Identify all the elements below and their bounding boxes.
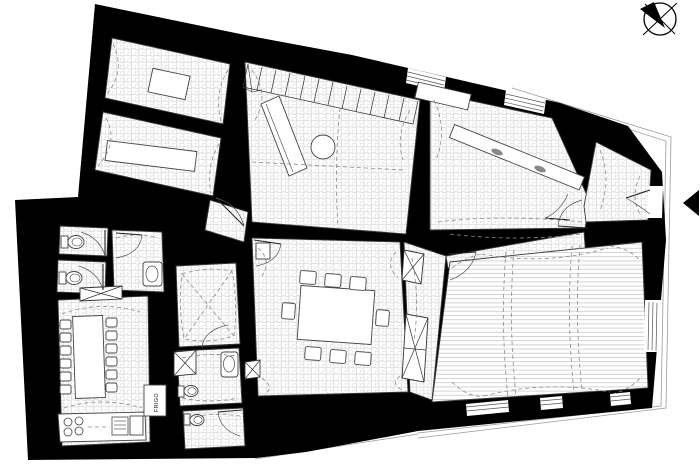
fridge: FRIGO xyxy=(144,385,166,416)
toilet-icon xyxy=(59,272,82,285)
floor-plan-page: FRIGO xyxy=(0,0,700,464)
room-bedroom-large xyxy=(432,242,648,402)
window-bottom-2 xyxy=(540,396,563,410)
toilet-icon xyxy=(61,236,84,249)
crossed-shaft-icon xyxy=(245,360,260,379)
toilet-icon xyxy=(184,414,204,426)
fridge-label: FRIGO xyxy=(154,393,160,412)
crossed-shaft-icon xyxy=(402,314,428,382)
sink-icon xyxy=(143,262,162,286)
crossed-shaft-icon xyxy=(80,286,122,301)
sink-icon xyxy=(112,416,143,435)
floor-plan-drawing: FRIGO xyxy=(0,0,700,464)
kitchen-counter xyxy=(58,412,146,442)
entrance-arrow-icon xyxy=(683,190,699,216)
crossed-shaft-icon xyxy=(402,250,424,284)
window-right xyxy=(644,300,661,352)
crossed-shaft-icon xyxy=(174,350,196,376)
sink-icon xyxy=(221,352,238,377)
wc-center xyxy=(183,408,245,449)
wall-niche xyxy=(256,243,270,259)
round-table xyxy=(311,135,335,159)
compass-rose-icon xyxy=(640,2,677,35)
toilet-icon xyxy=(178,386,198,398)
